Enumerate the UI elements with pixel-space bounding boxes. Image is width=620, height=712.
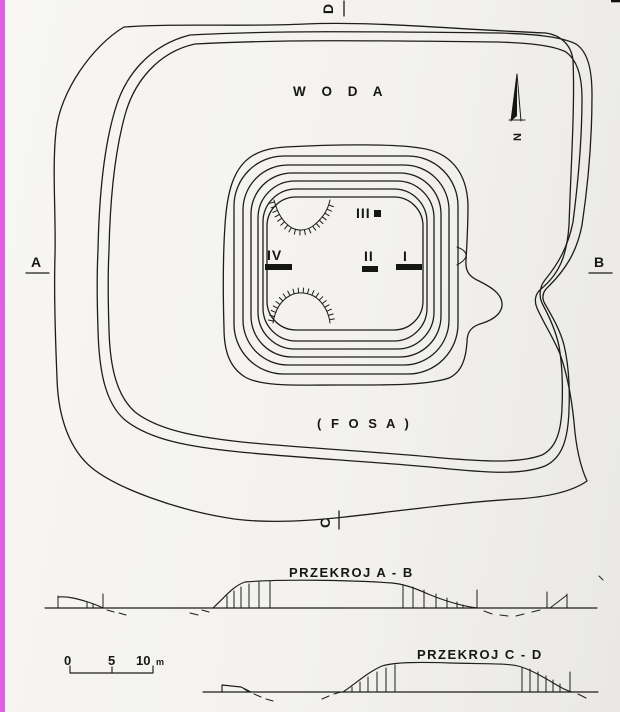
marker-b-label: B bbox=[594, 254, 604, 270]
trench-iv-label: IV bbox=[267, 247, 282, 263]
scale-tick-5-label: 5 bbox=[108, 653, 115, 668]
marker-c-label: C bbox=[317, 518, 333, 528]
trench-i-label: I bbox=[403, 248, 408, 264]
trench-i-bar bbox=[396, 264, 422, 270]
scale-bar: 0 5 10 m bbox=[64, 653, 164, 673]
mound-contour-inner bbox=[267, 197, 423, 330]
section-ab-right-ticks bbox=[477, 590, 567, 608]
cross-section-ab: PRZEKROJ A - B bbox=[45, 565, 603, 616]
water-label: W O D A bbox=[293, 84, 389, 99]
north-arrow: N bbox=[509, 74, 525, 141]
moat-label: ( F O S A ) bbox=[317, 416, 412, 431]
section-cd-title: PRZEKROJ C - D bbox=[417, 647, 543, 662]
site-plan-drawing: III IV II I W O D A ( F O S A ) A B D C bbox=[0, 0, 620, 712]
moat-ring-inner bbox=[108, 41, 582, 461]
section-ab-left-mound bbox=[58, 597, 103, 608]
scale-tick-10-label: 10 bbox=[136, 653, 150, 668]
section-ab-left-hachures bbox=[58, 594, 103, 608]
trench-ii-bar bbox=[362, 266, 378, 272]
trench-ii-label: II bbox=[364, 248, 374, 264]
section-ab-dashed-ditch bbox=[107, 610, 540, 616]
section-cd-left-step bbox=[222, 685, 251, 692]
cross-section-cd: PRZEKROJ C - D bbox=[203, 647, 598, 701]
trench-iii-square bbox=[374, 210, 381, 217]
scanned-map-page: III IV II I W O D A ( F O S A ) A B D C bbox=[0, 0, 620, 712]
section-ab-stray-mark bbox=[599, 576, 603, 580]
section-ab-title: PRZEKROJ A - B bbox=[289, 565, 414, 580]
marker-d-label: D bbox=[320, 4, 336, 14]
section-line-markers: A B D C bbox=[26, 1, 612, 529]
section-ab-slope-hachures-left bbox=[227, 581, 270, 608]
trench-iv-bar bbox=[265, 264, 292, 270]
north-label: N bbox=[512, 133, 524, 141]
depression-upper-edge bbox=[274, 200, 330, 230]
trench-markers: III IV II I bbox=[265, 205, 422, 272]
trench-iii-label: III bbox=[356, 205, 371, 221]
scale-unit-label: m bbox=[156, 657, 164, 667]
section-cd-dashed-ditch bbox=[254, 692, 586, 701]
marker-a-label: A bbox=[31, 254, 41, 270]
section-ab-mound-profile bbox=[213, 580, 477, 608]
section-cd-slope-hachures-left bbox=[352, 665, 395, 692]
